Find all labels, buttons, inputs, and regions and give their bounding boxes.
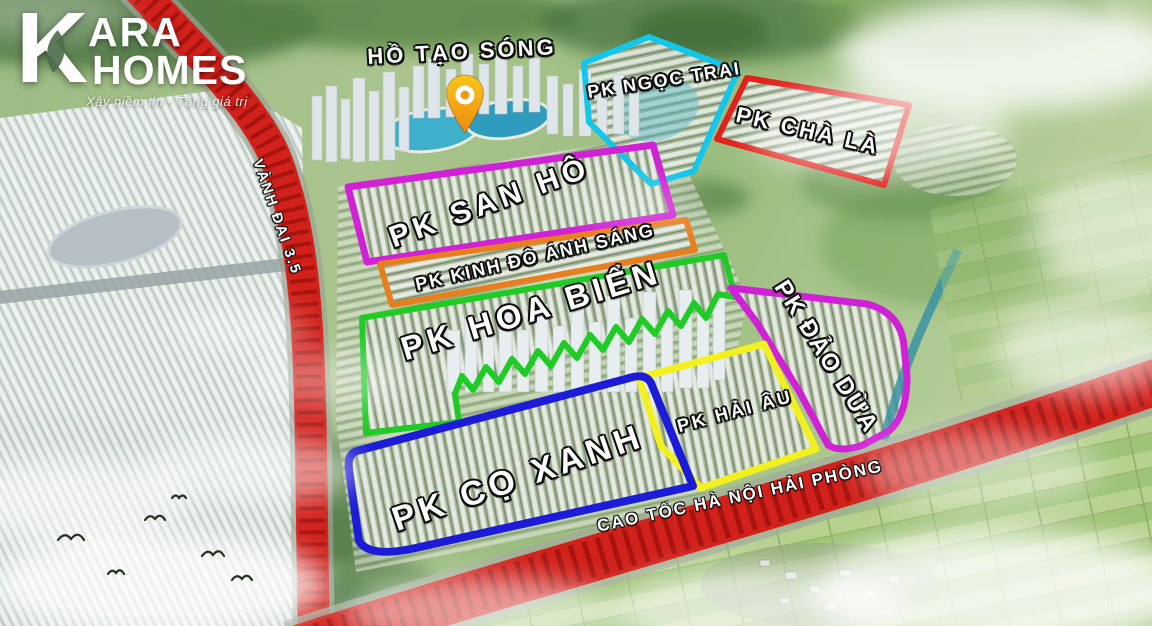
- masterplan-map: K ARA HOMES Xây niềm tin - Tặng giá trị …: [0, 0, 1152, 626]
- brand-tagline: Xây niềm tin - Tặng giá trị: [86, 94, 248, 109]
- leaf-icon: [43, 30, 77, 74]
- brand-homes-text: HOMES: [92, 50, 247, 91]
- map-pin-icon: [445, 74, 485, 134]
- brand-logo: K ARA HOMES Xây niềm tin - Tặng giá trị: [16, 8, 296, 118]
